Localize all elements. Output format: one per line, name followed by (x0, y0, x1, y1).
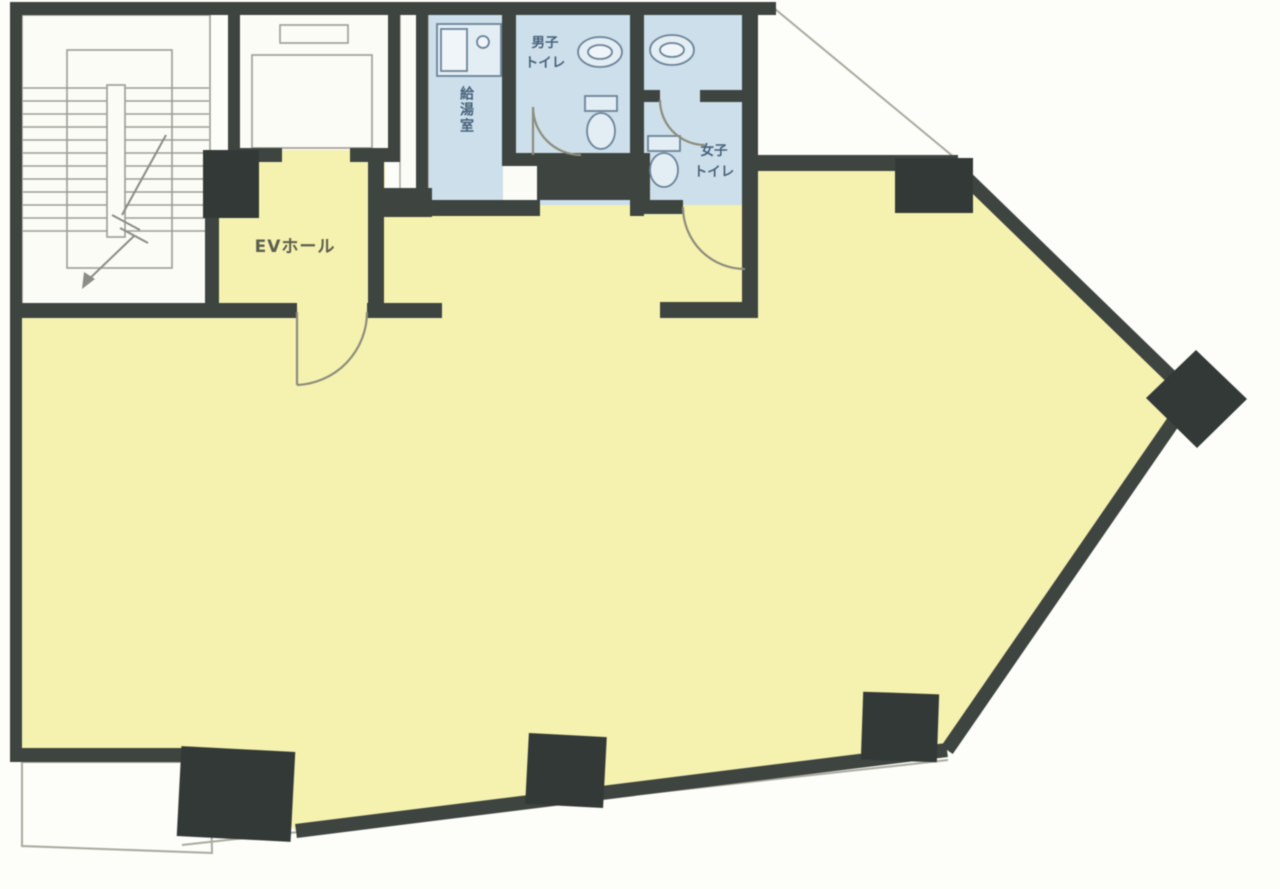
kitchenette-sink (437, 24, 501, 76)
ev-hall-label: EVホール (255, 237, 336, 257)
kitchenette-wall-left (416, 8, 428, 212)
womens-internal-wall-b (700, 90, 757, 102)
wall-bottom-left (14, 748, 186, 762)
womens-internal-wall-a (643, 90, 660, 102)
column-ev-hall (203, 150, 259, 218)
kitchenette-door-opening (503, 166, 537, 200)
kitchenette-label: 給湯室 (458, 85, 474, 134)
wall-chunk-below-shaft (378, 188, 432, 217)
womens-toilet-wall-bottom (643, 200, 683, 214)
mens-washbasin (578, 37, 622, 67)
site-outline-diagonal (775, 9, 955, 158)
stairwell (22, 15, 210, 305)
column-bottom-left (177, 746, 296, 842)
kitchenette-wall-right (502, 10, 516, 166)
mens-toilet-label-line1: 男子 (532, 35, 560, 51)
floor-plan-page: EVホール 給湯室 男子 トイレ 女子 トイレ (0, 0, 1280, 889)
elevator (240, 15, 388, 150)
column-bottom-middle (525, 733, 607, 808)
womens-toilet-fixture (648, 136, 680, 187)
column-bottom-right (861, 692, 939, 763)
floor-plan-drawing: EVホール 給湯室 男子 トイレ 女子 トイレ (0, 0, 1280, 889)
wall-left (10, 2, 22, 762)
womens-toilet-label-line1: 女子 (701, 142, 729, 159)
ev-hall-wall-right (368, 150, 384, 310)
elevator-wall-right (388, 2, 400, 162)
wall-under-stairs (16, 303, 297, 318)
wall-nook-foot (660, 302, 758, 318)
column-top-right (895, 158, 973, 213)
mens-toilet-fixture (585, 96, 617, 149)
wall-right-of-toilets (742, 2, 758, 318)
wall-under-ev-hall-right (367, 303, 442, 318)
elevator-wall-left (228, 2, 240, 162)
mens-toilet-label-line2: トイレ (525, 55, 566, 71)
womens-washbasin (650, 35, 694, 65)
corridor-nook-area (378, 205, 750, 315)
womens-toilet-label-line2: トイレ (694, 164, 735, 180)
kitchenette-wall-bottom (414, 200, 540, 216)
toilet-divider-wall (630, 10, 644, 216)
elevator-shaft-interior (240, 15, 388, 150)
